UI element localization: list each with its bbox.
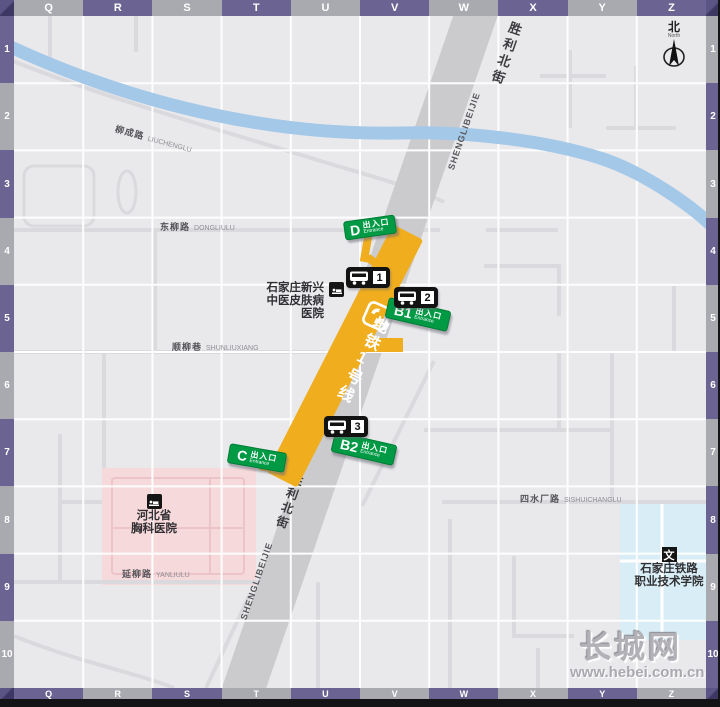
grid-left: 12345678910	[0, 16, 14, 688]
grid-cell-W: W	[429, 0, 498, 16]
grid-cell-Y: Y	[568, 0, 637, 16]
grid-cell-8: 8	[0, 486, 14, 553]
road-label-shunliu: 顺柳巷 SHUNLIUXIANG	[172, 340, 259, 353]
map-canvas: 胜利北街 SHENGLIBEIJIE 胜利北街 SHENGLIBEIJIE 东柳…	[14, 16, 706, 688]
grid-cell-5: 5	[0, 285, 14, 352]
bus-icon	[397, 290, 417, 305]
stadium-oval	[118, 171, 136, 213]
grid-cell-T: T	[222, 688, 291, 699]
bus-stop-number: 3	[350, 419, 365, 434]
bus-stop-number: 1	[372, 270, 387, 285]
bus-stop-sign-1: 1	[346, 267, 390, 288]
bus-stop-sign-3: 3	[324, 416, 368, 437]
bus-stop-number: 2	[420, 290, 435, 305]
grid-cell-X: X	[498, 0, 567, 16]
watermark-url: www.hebei.com.cn	[570, 664, 704, 681]
grid-bottom: QRSTUVWXYZ	[14, 688, 706, 699]
grid-cell-R: R	[83, 688, 152, 699]
grid-cell-3: 3	[0, 150, 14, 217]
grid-cell-U: U	[291, 688, 360, 699]
road-label-yanliu: 延柳路 YANLIULU	[122, 567, 190, 580]
grid-cell-2: 2	[0, 83, 14, 150]
grid-cell-7: 7	[0, 419, 14, 486]
grid-top: QRSTUVWXYZ	[14, 0, 706, 16]
frame-corner	[0, 688, 14, 699]
metro-station-area-map: QRSTUVWXYZ QRSTUVWXYZ 12345678910 123456…	[0, 0, 720, 707]
frame-shadow-edge	[0, 699, 720, 707]
grid-cell-R: R	[83, 0, 152, 16]
grid-cell-U: U	[291, 0, 360, 16]
road-label-dongliu: 东柳路 DONGLIULU	[160, 220, 235, 233]
compass-icon	[660, 39, 688, 69]
grid-cell-10: 10	[0, 621, 14, 688]
grid-cell-Y: Y	[568, 688, 637, 699]
hospital-icon	[329, 282, 344, 297]
grid-cell-Z: Z	[637, 688, 706, 699]
north-arrow: 北 North	[654, 22, 694, 74]
grid-cell-W: W	[429, 688, 498, 699]
grid-cell-Z: Z	[637, 0, 706, 16]
entrance-letter: B2	[339, 436, 360, 454]
bus-stop-sign-2: 2	[394, 287, 438, 308]
grid-cell-Q: Q	[14, 688, 83, 699]
school-icon: 文	[662, 547, 677, 562]
entrance-letter: D	[349, 222, 361, 237]
grid-cell-T: T	[222, 0, 291, 16]
grid-cell-1: 1	[0, 16, 14, 83]
grid-cell-Q: Q	[14, 0, 83, 16]
bus-icon	[327, 419, 347, 434]
poi-xinxing-hospital: 石家庄新兴 中医皮肤病 医院	[252, 282, 344, 321]
watermark-logo: 长城网	[580, 622, 682, 667]
bus-icon	[349, 270, 369, 285]
grid-cell-6: 6	[0, 352, 14, 419]
grid-cell-S: S	[152, 0, 221, 16]
road-label-sishuichang: 四水厂路 SISHUICHANGLU	[520, 492, 622, 505]
grid-cell-S: S	[152, 688, 221, 699]
entrance-letter: C	[236, 448, 248, 464]
poi-railway-college: 文 石家庄铁路 职业技术学院	[615, 547, 706, 589]
grid-cell-X: X	[498, 688, 567, 699]
frame-corner	[0, 0, 14, 16]
grid-cell-9: 9	[0, 554, 14, 621]
grid-cell-V: V	[360, 688, 429, 699]
hospital-icon	[147, 494, 162, 509]
grid-cell-V: V	[360, 0, 429, 16]
poi-xiongke-hospital: 河北省 胸科医院	[118, 494, 190, 536]
grid-cell-4: 4	[0, 218, 14, 285]
